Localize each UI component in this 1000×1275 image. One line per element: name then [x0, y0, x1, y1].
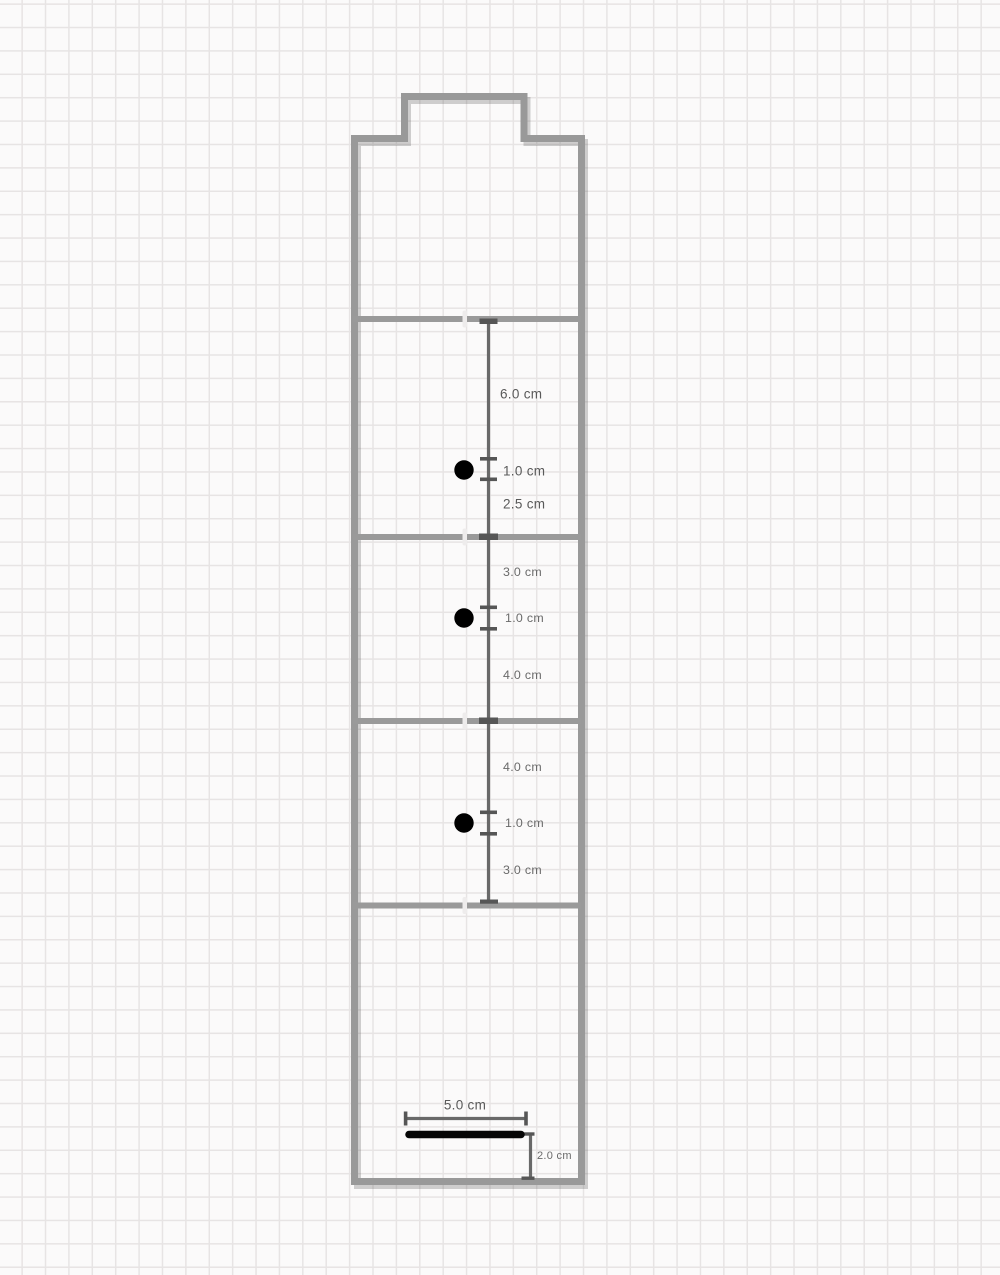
- dim-label-slot-width: 5.0 cm: [444, 1098, 486, 1113]
- hole-3[interactable]: [454, 813, 473, 832]
- fold-notch-2: [463, 529, 468, 546]
- dim-label-s3-above: 4.0 cm: [503, 760, 542, 774]
- dimension-annotations: [404, 319, 535, 1180]
- dim-tick: [522, 1177, 535, 1180]
- dim-tick: [480, 606, 497, 610]
- dim-tick: [479, 534, 498, 541]
- dim-label-s3-below: 3.0 cm: [503, 863, 542, 877]
- template-outline[interactable]: [355, 97, 582, 1182]
- dim-label-s2-above: 3.0 cm: [503, 565, 542, 579]
- dim-tick: [524, 1112, 528, 1126]
- dim-tick: [404, 1112, 408, 1126]
- dim-tick: [480, 900, 498, 904]
- dim-tick: [480, 319, 498, 325]
- drawing-canvas[interactable]: 6.0 cm 1.0 cm 2.5 cm 3.0 cm 1.0 cm 4.0 c…: [0, 0, 1000, 1275]
- dim-tick: [480, 457, 497, 461]
- fold-notch-1: [463, 311, 468, 328]
- hole-2[interactable]: [454, 608, 473, 627]
- dim-label-s3-hole: 1.0 cm: [505, 816, 544, 830]
- dim-label-s2-below: 4.0 cm: [503, 668, 542, 682]
- dim-tick: [479, 718, 498, 725]
- dim-tick: [480, 811, 497, 815]
- holes: [454, 460, 473, 832]
- dim-label-slot-offset: 2.0 cm: [537, 1150, 572, 1162]
- dim-label-s1-above: 6.0 cm: [500, 387, 542, 402]
- template-drawing: [0, 0, 1000, 1275]
- fold-notch-3: [463, 713, 468, 730]
- dim-tick: [480, 627, 497, 631]
- dim-tick: [480, 478, 497, 482]
- dim-tick: [480, 832, 497, 836]
- hole-1[interactable]: [454, 460, 473, 479]
- fold-notch-4: [463, 897, 468, 914]
- dim-label-s1-hole: 1.0 cm: [503, 463, 545, 478]
- dim-label-s1-below: 2.5 cm: [503, 497, 545, 512]
- dim-label-s2-hole: 1.0 cm: [505, 611, 544, 625]
